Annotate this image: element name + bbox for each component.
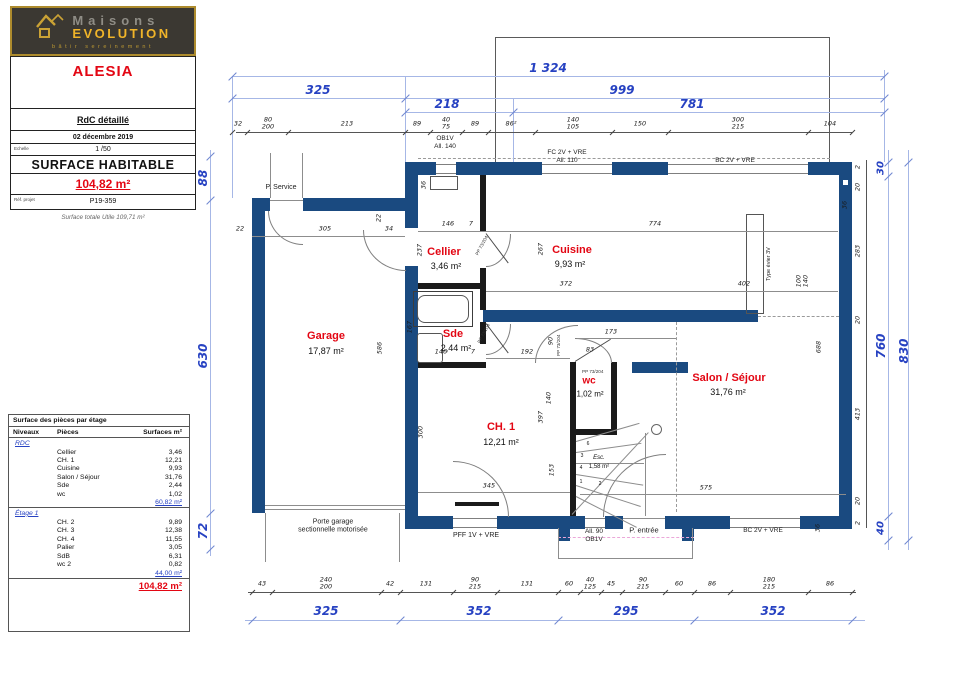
- label-garage-door: Porte garage sectionnelle motorisée: [298, 519, 368, 536]
- wall-hall-stub: [632, 362, 688, 373]
- dim-label: 131: [521, 580, 533, 587]
- wall-house-right: [839, 162, 852, 528]
- dim-label: 42: [386, 580, 394, 587]
- areas-table-header: Niveaux Pièces Surfaces m²: [9, 427, 189, 438]
- porch-post-left: [558, 529, 570, 541]
- table-row: CH. 312,38: [9, 527, 189, 535]
- dim-label: 104: [824, 120, 836, 127]
- dim-label: 60: [675, 580, 683, 587]
- dim-label: 80 200: [262, 117, 274, 132]
- grand-total: 104,82 m²: [9, 579, 189, 595]
- rdc-subtotal: 60,82 m²: [9, 498, 189, 508]
- driveway-right: [399, 513, 400, 562]
- piece-area: 3,05: [143, 544, 189, 551]
- partition-cellier-right-upper: [480, 175, 486, 232]
- level-rdc: RDC: [9, 438, 189, 448]
- stair-tread: [576, 463, 644, 464]
- room-salon-area: 31,76 m²: [710, 387, 746, 397]
- dim-label: 86²: [506, 120, 517, 127]
- piece-area: 31,76: [143, 474, 189, 481]
- date-row: 02 décembre 2019: [11, 131, 195, 144]
- dim-label: 7: [471, 348, 475, 355]
- dashed-salon-divider: [676, 322, 677, 512]
- dim-ext-line: [884, 70, 885, 162]
- label-pp-wc: PP 73/204: [582, 369, 603, 374]
- window-ob1v-top: [436, 164, 456, 174]
- window-pff: [453, 518, 497, 528]
- areas-table: Surface des pièces par étage Niveaux Piè…: [8, 414, 190, 632]
- dim-line: [405, 112, 884, 113]
- piece-name: wc: [57, 491, 143, 498]
- room-ch1-area: 12,21 m²: [483, 437, 519, 447]
- ref-value: P19-359: [90, 198, 116, 205]
- label-p-service: P. Service: [266, 184, 297, 192]
- dim-label: 150: [634, 120, 646, 127]
- porch-edge-right: [692, 528, 693, 559]
- dim-line: [577, 338, 676, 339]
- dim-line: [418, 231, 838, 232]
- walkway-right: [302, 153, 303, 198]
- dim-label: 45: [607, 580, 615, 587]
- dim-line: [866, 160, 867, 528]
- wall-right-notch: [843, 180, 848, 185]
- dim-line: [580, 494, 846, 495]
- table-row: CH. 411,55: [9, 535, 189, 543]
- dim-right-30: 30: [876, 161, 887, 175]
- piece-name: Cellier: [57, 449, 143, 456]
- dim-line: [210, 150, 211, 556]
- room-garage-area: 17,87 m²: [308, 346, 344, 356]
- stair-step-number: 4: [580, 465, 583, 471]
- table-row: CH. 29,89: [9, 518, 189, 526]
- piece-area: 12,21: [143, 457, 189, 464]
- wall-top-c: [612, 162, 668, 175]
- etage1-subtotal: 44,00 m²: [9, 569, 189, 579]
- stair-step-number: 2: [599, 481, 602, 487]
- wall-top-a: [405, 162, 436, 175]
- piece-name: Sde: [57, 482, 143, 489]
- garage-door-line2: [265, 509, 405, 510]
- piece-name: Cuisine: [57, 465, 143, 472]
- surface-label-row: SURFACE HABITABLE: [11, 156, 195, 174]
- stair-step-number: 1: [580, 479, 583, 485]
- dim-781: 781: [679, 97, 704, 111]
- room-cuisine-area: 9,93 m²: [555, 259, 586, 269]
- dim-label: 131: [420, 580, 432, 587]
- piece-name: wc 2: [57, 561, 143, 568]
- piece-area: 0,82: [143, 561, 189, 568]
- dim-line: [888, 150, 889, 550]
- dim-label: 20: [854, 497, 861, 505]
- piece-area: 9,93: [143, 465, 189, 472]
- wall-bottom-a: [405, 516, 453, 529]
- dim-label: 36: [814, 524, 821, 532]
- piece-area: 9,89: [143, 519, 189, 526]
- dim-label: 237: [416, 244, 423, 256]
- dim-label: 300 215: [732, 117, 744, 132]
- piece-area: 12,38: [143, 527, 189, 534]
- entree-threshold: [623, 518, 665, 519]
- dim-label: 146: [435, 348, 447, 355]
- dim-label: 153: [548, 464, 555, 476]
- level-etage1: Étage 1: [9, 508, 189, 518]
- table-row: wc1,02: [9, 490, 189, 498]
- dim-label: 2: [854, 521, 861, 525]
- table-row: CH. 112,21: [9, 456, 189, 464]
- partition-cellier-right-lower: [480, 268, 486, 310]
- dim-bottom-352b: 352: [760, 604, 785, 618]
- shower-tray-inner: [417, 295, 469, 323]
- dim-label: 90 215: [469, 577, 481, 592]
- dim-label: 774: [649, 220, 661, 227]
- floor-plan-sheet: Maisons EVOLUTION bâtir sereinement ALES…: [0, 0, 960, 678]
- piece-name: CH. 1: [57, 457, 143, 464]
- stair-area: 1,58 m²: [589, 464, 609, 470]
- window-bc-top: [668, 164, 808, 174]
- dim-label: 7: [469, 220, 473, 227]
- surface-label: SURFACE HABITABLE: [32, 158, 175, 172]
- dim-label: 180 215: [763, 577, 775, 592]
- piece-name: Salon / Séjour: [57, 474, 143, 481]
- piece-name: CH. 3: [57, 527, 143, 534]
- wall-bottom-e: [800, 516, 852, 529]
- project-row: ALESIA: [11, 57, 195, 109]
- dim-total-width: 1 324: [529, 61, 567, 75]
- ref-label: Réf. projet: [14, 197, 35, 202]
- dim-left-630: 630: [196, 343, 210, 368]
- pservice-threshold: [270, 200, 303, 201]
- dim-label: 167: [406, 321, 413, 333]
- dim-label: 89: [471, 120, 479, 127]
- piece-area: 2,44: [143, 482, 189, 489]
- dim-label: 20: [854, 183, 861, 191]
- dim-line: [232, 98, 884, 99]
- table-row: wc 20,82: [9, 560, 189, 568]
- dim-line: [486, 291, 838, 292]
- wall-garage-top: [303, 198, 405, 211]
- dim-label: 146: [442, 220, 454, 227]
- wall-top-b: [456, 162, 542, 175]
- stair-step-number: 6: [587, 441, 590, 447]
- dim-label: 40 75: [442, 117, 450, 132]
- table-row: Sde2,44: [9, 482, 189, 490]
- dashed-porch-line: [558, 537, 694, 538]
- room-cuisine: Cuisine: [552, 244, 592, 256]
- dim-bottom-352a: 352: [466, 604, 491, 618]
- dim-label: 36: [420, 181, 427, 189]
- porch-edge-left: [558, 528, 559, 559]
- table-row: Palier3,05: [9, 544, 189, 552]
- dim-label: 240 200: [320, 577, 332, 592]
- dim-label: 32: [234, 120, 242, 127]
- dim-label: 83: [586, 346, 594, 353]
- dim-label: 89: [413, 120, 421, 127]
- table-row: Cellier3,46: [9, 448, 189, 456]
- dim-line: [236, 132, 852, 133]
- table-row: Cuisine9,93: [9, 465, 189, 473]
- table-row: SdB6,31: [9, 552, 189, 560]
- label-pff-window: PFF 1V + VRE: [453, 532, 499, 540]
- dim-label: 283: [854, 245, 861, 257]
- total-usable-note: Surface totale Utile 109,71 m²: [61, 214, 144, 221]
- dim-ext-line: [513, 98, 514, 162]
- label-bc-bottom-window: BC 2V + VRE: [743, 527, 783, 535]
- garage-door-line1: [265, 505, 405, 506]
- dim-line: [486, 358, 570, 359]
- table-row: Salon / Séjour31,76: [9, 473, 189, 481]
- piece-area: 6,31: [143, 553, 189, 560]
- dim-label: 20: [854, 316, 861, 324]
- label-ob1v-top: OB1V All. 140: [434, 135, 456, 151]
- scale-row: Echelle 1 /50: [11, 144, 195, 156]
- surface-value-row: 104,82 m²: [11, 174, 195, 195]
- wall-bottom-b: [497, 516, 585, 529]
- label-p-entree: P. entrée: [629, 526, 658, 535]
- room-wc-area: 1,02 m²: [576, 390, 603, 399]
- partition-wc-right: [611, 362, 617, 435]
- porch-edge-bottom: [558, 558, 693, 559]
- room-salon: Salon / Séjour: [692, 372, 765, 384]
- dim-label: 688: [815, 341, 822, 353]
- piece-area: 3,46: [143, 449, 189, 456]
- driveway-left: [265, 513, 266, 562]
- appliance-box: [430, 176, 458, 190]
- dim-label: 192: [521, 348, 533, 355]
- scale-label: Echelle: [14, 146, 29, 151]
- dim-label: 397: [537, 411, 544, 423]
- wall-garage-top-stub: [252, 198, 270, 211]
- dim-line: [252, 236, 405, 237]
- label-pp-hall: PP 73/204: [556, 335, 561, 356]
- areas-table-title: Surface des pièces par étage: [9, 415, 189, 427]
- brand-tagline: bâtir sereinement: [52, 44, 154, 50]
- piece-area: 1,02: [143, 491, 189, 498]
- dim-label: 213: [341, 120, 353, 127]
- dim-right-760: 760: [874, 333, 888, 358]
- room-ch1: CH. 1: [487, 421, 515, 433]
- dim-line: [232, 76, 884, 77]
- dim-label: 86: [708, 580, 716, 587]
- dim-label: 40 125: [584, 577, 596, 592]
- dim-label: 140 105: [567, 117, 579, 132]
- drawing-row: RdC détaillé: [11, 109, 195, 131]
- window-fc: [542, 164, 612, 174]
- col-pieces: Pièces: [57, 429, 143, 436]
- dim-label: 305: [319, 225, 331, 232]
- room-cellier: Cellier: [427, 246, 461, 258]
- project-name: ALESIA: [72, 63, 133, 80]
- dim-label: 34: [385, 225, 393, 232]
- wall-bottom-d: [665, 516, 730, 529]
- ref-row: Réf. projet P19-359: [11, 195, 195, 208]
- partition-ch1-right: [570, 362, 576, 516]
- brand-top: Maisons: [72, 14, 170, 27]
- dim-bottom-325: 325: [313, 604, 338, 618]
- room-wc: wc: [582, 376, 595, 387]
- scale-value: 1 /50: [95, 146, 111, 153]
- stair-label: Esc.: [593, 455, 605, 461]
- dim-label: 100 140: [796, 275, 811, 287]
- piece-name: Palier: [57, 544, 143, 551]
- upper-floor-dashed-edge: [418, 158, 830, 159]
- piece-name: CH. 2: [57, 519, 143, 526]
- col-niveaux: Niveaux: [9, 429, 57, 436]
- dim-ext-line: [405, 76, 406, 162]
- dim-left-72: 72: [196, 523, 210, 540]
- surface-value: 104,82 m²: [76, 177, 131, 191]
- brand-bottom: EVOLUTION: [72, 27, 170, 40]
- dim-ext-line: [232, 76, 233, 198]
- title-block: ALESIA RdC détaillé 02 décembre 2019 Ech…: [10, 56, 196, 210]
- label-bc-top-window: BC 2V + VRE: [715, 157, 755, 165]
- stair-pole-marker: [651, 424, 662, 435]
- dim-label: 90: [547, 337, 554, 345]
- label-fc-window: FC 2V + VRE All. 110: [547, 149, 586, 165]
- dim-tick: [850, 130, 856, 136]
- dim-right-40: 40: [876, 521, 887, 535]
- dim-label: 372: [560, 280, 572, 287]
- dim-218: 218: [434, 97, 459, 111]
- stair-step-number: 3: [581, 453, 584, 459]
- wall-interior-bearing: [483, 310, 758, 322]
- label-evier: Type évier 3V: [766, 247, 772, 281]
- house-icon: [35, 13, 65, 41]
- dim-line: [245, 620, 865, 621]
- dim-label: 43: [258, 580, 266, 587]
- dim-label: 300: [417, 426, 424, 438]
- dim-label: 575: [700, 484, 712, 491]
- dashed-bearing-extension: [758, 316, 839, 317]
- room-sde: Sde: [443, 328, 463, 340]
- stair-right-edge: [645, 433, 646, 516]
- window-ob1v-bottom: [585, 518, 605, 528]
- kitchen-sink-unit: [746, 214, 764, 314]
- piece-area: 11,55: [143, 536, 189, 543]
- dim-left-88: 88: [196, 170, 210, 187]
- dim-label: 22: [236, 225, 244, 232]
- dim-label: 413: [854, 408, 861, 420]
- dim-label: 22: [375, 214, 382, 222]
- dim-label: 90 215: [637, 577, 649, 592]
- door-arc-pservice: [268, 211, 303, 245]
- dim-house-width: 999: [609, 83, 634, 97]
- dim-label: 36: [841, 201, 848, 209]
- dim-label: 345: [483, 482, 495, 489]
- dim-label: 60: [565, 580, 573, 587]
- room-garage: Garage: [307, 330, 345, 342]
- col-surfaces: Surfaces m²: [143, 429, 189, 436]
- door-arc-pff: [453, 461, 509, 517]
- dim-label: 402: [738, 280, 750, 287]
- dim-label: 140: [545, 392, 552, 404]
- upper-floor-outline: [495, 37, 830, 165]
- piece-name: SdB: [57, 553, 143, 560]
- dim-label: 173: [605, 328, 617, 335]
- dim-label: 2: [854, 165, 861, 169]
- company-logo: Maisons EVOLUTION bâtir sereinement: [10, 6, 196, 56]
- dim-label: 586: [376, 342, 383, 354]
- wall-garage-left: [252, 198, 265, 513]
- dim-label: 86: [826, 580, 834, 587]
- room-cellier-area: 3,46 m²: [431, 261, 462, 271]
- dim-line: [418, 492, 570, 493]
- dim-bottom-295: 295: [613, 604, 638, 618]
- dim-right-830: 830: [897, 338, 911, 363]
- dim-line: [248, 592, 856, 593]
- partition-cellier-bottom: [418, 283, 486, 289]
- piece-name: CH. 4: [57, 536, 143, 543]
- drawing-title: RdC détaillé: [77, 115, 129, 125]
- dim-garage-width: 325: [305, 83, 330, 97]
- drawing-date: 02 décembre 2019: [73, 134, 133, 141]
- label-all90-window: All. 90 OB1V: [585, 528, 603, 544]
- dim-label: 267: [537, 243, 544, 255]
